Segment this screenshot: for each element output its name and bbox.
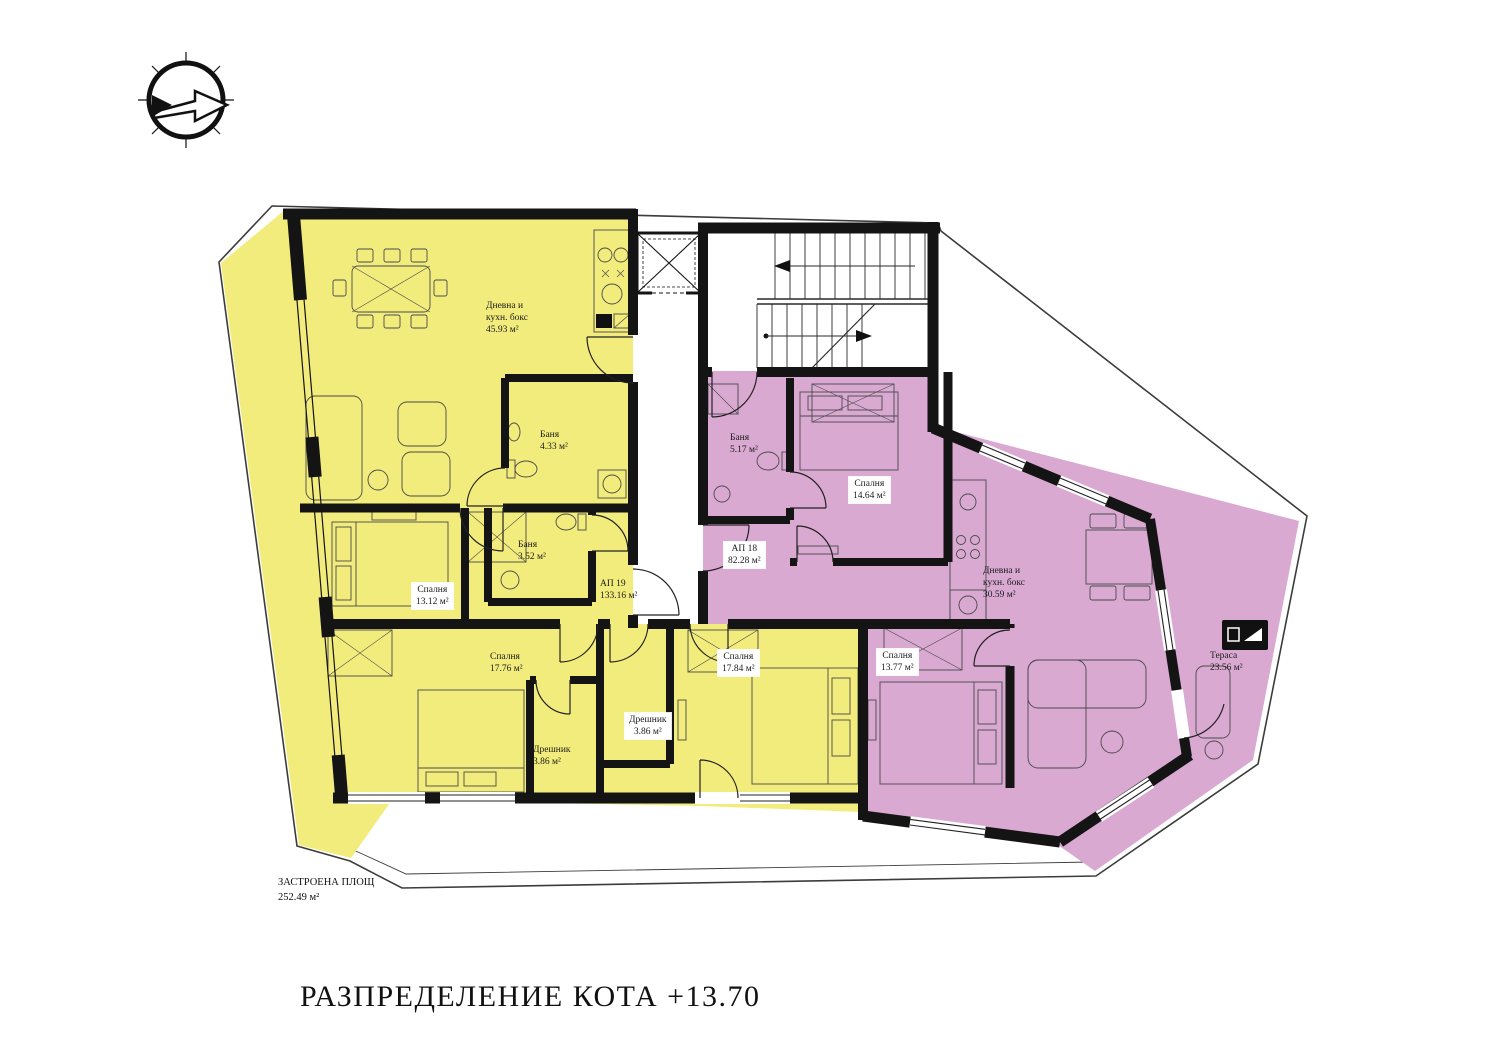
room-label-bath1-ap19: Баня 4.33 м² bbox=[540, 429, 568, 453]
room-label-bedroom1-ap18: Спалня 14.64 м² bbox=[849, 477, 890, 503]
apartment-19-label: АП 19 133.16 м² bbox=[600, 578, 637, 602]
floor-plan-drawing bbox=[0, 0, 1500, 1060]
room-label-bedroom2-ap19: Спалня 17.76 м² bbox=[490, 651, 523, 675]
room-label-bath-ap18: Баня 5.17 м² bbox=[730, 432, 758, 456]
plan-title: РАЗПРЕДЕЛЕНИЕ КОТА +13.70 bbox=[300, 980, 761, 1014]
room-label-closet1-ap19: Дрешник 3.86 м² bbox=[533, 744, 571, 768]
room-label-closet2-ap19: Дрешник 3.86 м² bbox=[625, 713, 671, 739]
room-label-bedroom2-ap18: Спалня 13.77 м² bbox=[877, 649, 918, 675]
room-label-terrace-ap18: Тераса 23.56 м² bbox=[1210, 650, 1243, 674]
built-area-note: ЗАСТРОЕНА ПЛОЩ 252.49 м² bbox=[278, 876, 374, 905]
room-label-living-ap19: Дневна и кухн. бокс 45.93 м² bbox=[486, 300, 528, 336]
floorplan-page: Дневна и кухн. бокс 45.93 м² Баня 4.33 м… bbox=[0, 0, 1500, 1060]
north-arrow-icon bbox=[138, 52, 234, 148]
room-label-bath2-ap19: Баня 3.52 м² bbox=[518, 539, 546, 563]
room-label-bedroom3-ap19: Спалня 17.84 м² bbox=[718, 650, 759, 676]
room-label-bedroom1-ap19: Спалня 13.12 м² bbox=[412, 583, 453, 609]
terrace-sign-icon bbox=[1222, 620, 1268, 650]
apartment-18-label: АП 18 82.28 м² bbox=[724, 542, 765, 568]
room-label-living-ap18: Дневна и кухн. бокс 30.59 м² bbox=[983, 565, 1025, 601]
